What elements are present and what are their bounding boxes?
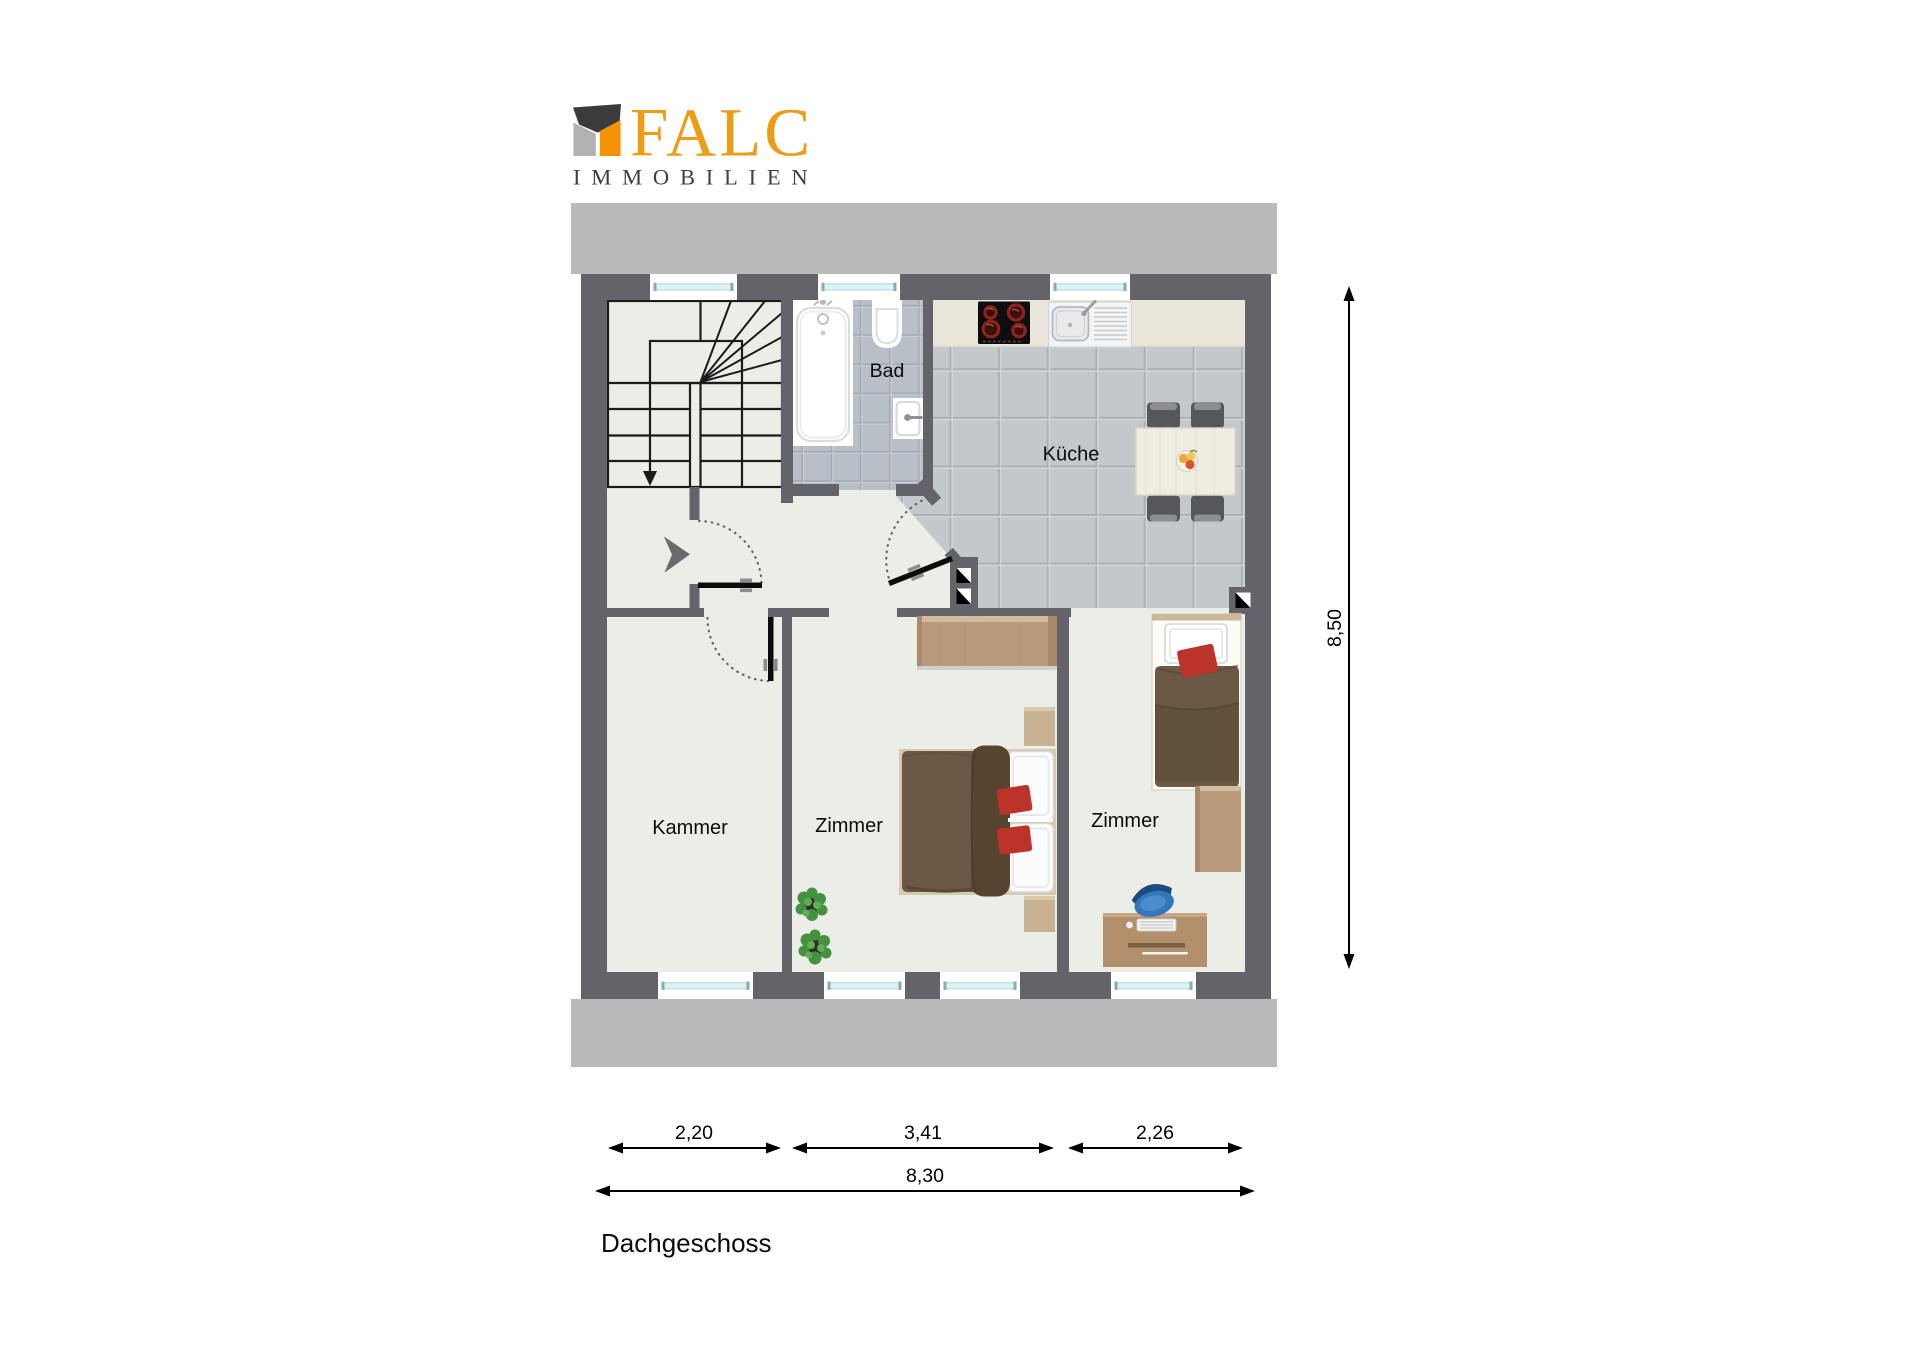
svg-text:IMMOBILIEN: IMMOBILIEN xyxy=(573,165,818,190)
svg-text:3,41: 3,41 xyxy=(904,1122,942,1144)
svg-text:Bad: Bad xyxy=(870,360,905,382)
svg-text:8,30: 8,30 xyxy=(906,1165,944,1187)
svg-text:FALC: FALC xyxy=(630,95,813,171)
svg-text:8,50: 8,50 xyxy=(1324,609,1346,647)
svg-text:Kammer: Kammer xyxy=(652,817,728,839)
svg-text:Zimmer: Zimmer xyxy=(1091,810,1159,832)
svg-text:2,20: 2,20 xyxy=(675,1122,713,1144)
svg-text:Zimmer: Zimmer xyxy=(815,815,883,837)
svg-text:Küche: Küche xyxy=(1043,444,1100,466)
svg-text:Dachgeschoss: Dachgeschoss xyxy=(601,1228,772,1258)
svg-text:2,26: 2,26 xyxy=(1136,1122,1174,1144)
